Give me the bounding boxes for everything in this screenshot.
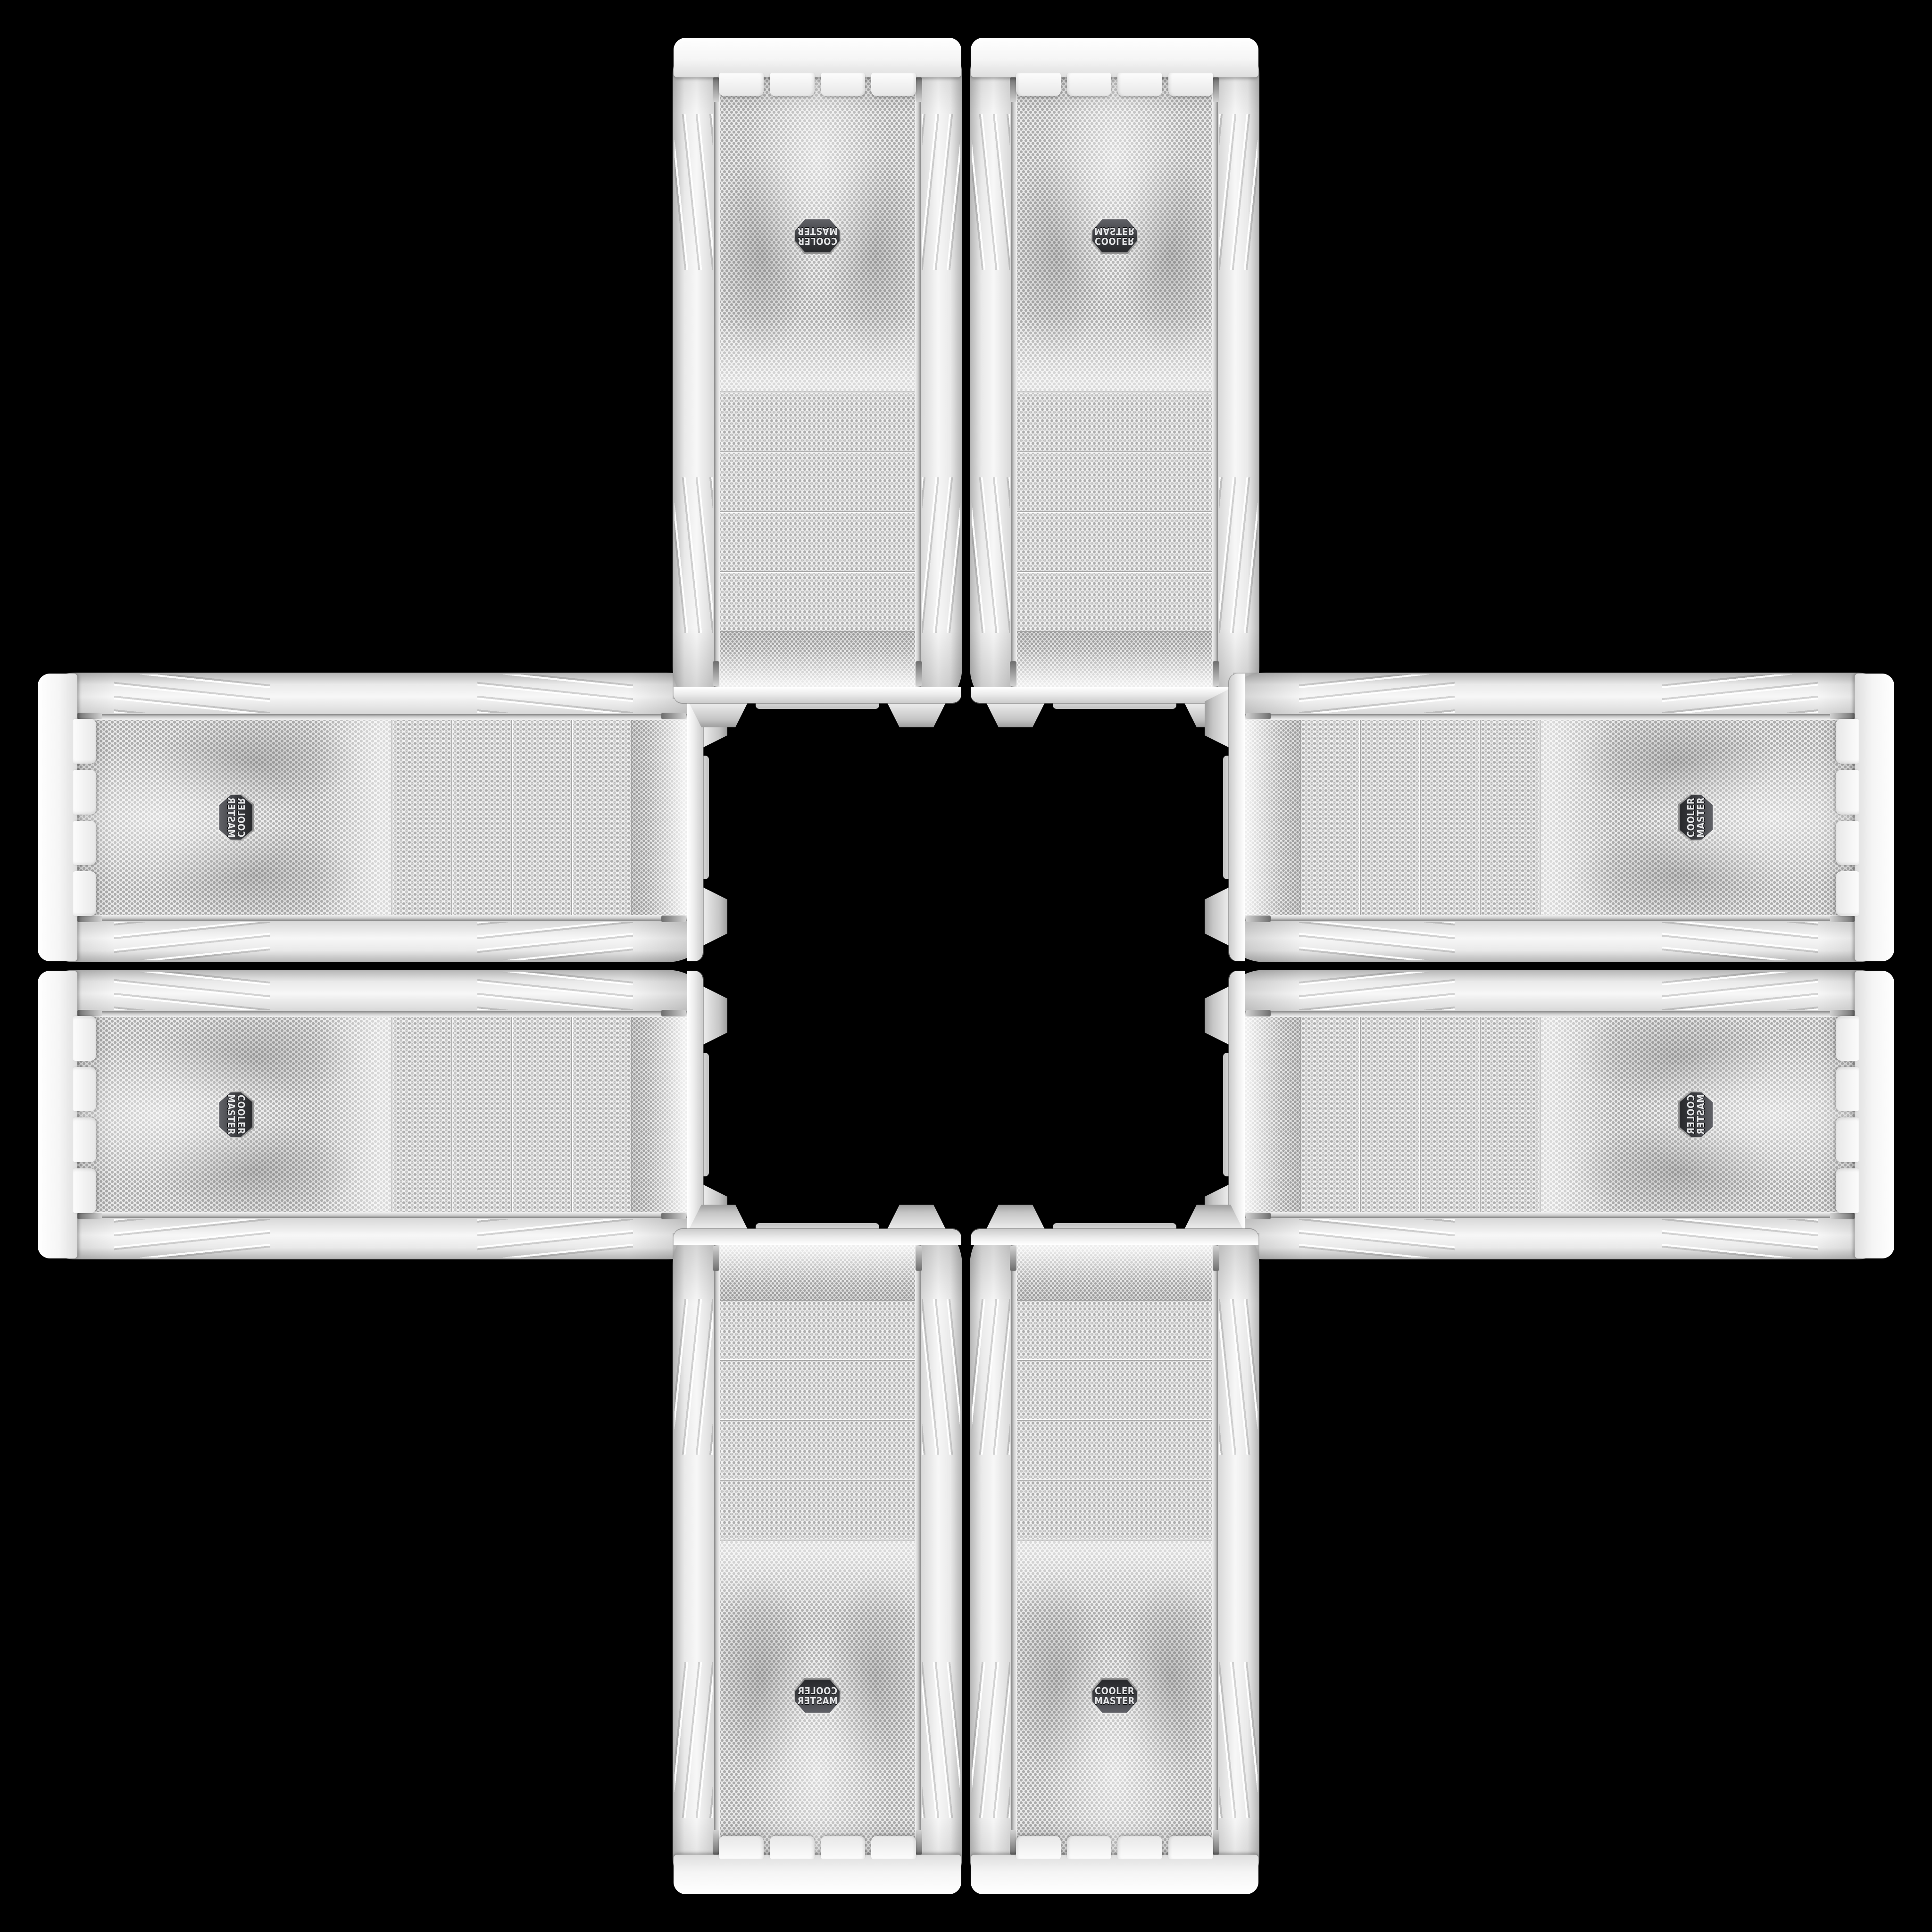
badge-text-line2: MASTER (226, 1094, 236, 1135)
side-groove-band (477, 922, 633, 960)
cap-tab-row (1016, 1836, 1213, 1859)
bottom-trim (1229, 674, 1245, 961)
chrome-hinge-accent (1246, 1213, 1271, 1219)
drive-bay-cover (720, 1301, 915, 1361)
chrome-hinge-accent (1830, 1213, 1855, 1219)
drive-bay-cover (1361, 720, 1421, 915)
bezel-seam-left (1242, 1212, 1857, 1218)
bezel-seam-left (75, 1212, 690, 1218)
badge-face: COOLER MASTER (795, 219, 840, 252)
cap-tab (1118, 1836, 1163, 1859)
cap-tab-row (73, 719, 96, 916)
drive-bay-cover (1421, 1017, 1481, 1212)
chrome-hinge-accent (1010, 661, 1016, 686)
pc-case-top-right: COOLER MASTER (970, 38, 1259, 703)
side-groove-band (1219, 477, 1257, 633)
side-groove-band (1662, 675, 1818, 713)
cap-tab (73, 770, 96, 815)
badge-text-line1: COOLER (1686, 1095, 1696, 1134)
cap-tab (73, 821, 96, 866)
front-mesh-panel (1017, 75, 1212, 687)
side-groove-band (1662, 1219, 1818, 1257)
cap-tab (73, 1016, 96, 1061)
intake-mesh (720, 1245, 915, 1301)
cap-tab (1836, 770, 1859, 815)
cooler-master-badge: COOLER MASTER (218, 794, 254, 841)
badge-text-line2: MASTER (226, 797, 236, 838)
bezel-seam-right (75, 915, 690, 921)
side-groove-band (1299, 675, 1455, 713)
drive-bay-cover (1361, 1017, 1421, 1212)
side-groove-band (675, 1662, 713, 1818)
bottom-lip (756, 702, 879, 709)
chrome-hinge-accent (661, 916, 686, 922)
side-panel-left (1218, 1233, 1259, 1889)
drive-bay-cover (720, 1361, 915, 1421)
front-mesh-panel (1017, 1245, 1212, 1857)
cap-tab (73, 719, 96, 764)
cap-tab (1016, 1836, 1061, 1859)
side-panel-left (1218, 43, 1259, 699)
side-panel-left (673, 1233, 714, 1889)
pc-case-left-top: COOLER MASTER (38, 673, 703, 962)
chrome-hinge-accent (916, 1246, 922, 1271)
drive-bay-cover (571, 720, 631, 915)
pc-case-right-top: COOLER MASTER (1229, 673, 1894, 962)
side-groove-band (922, 1662, 960, 1818)
case-foot (702, 881, 727, 952)
intake-mesh (1017, 631, 1212, 687)
cap-tab (871, 1836, 916, 1859)
drive-bay-cover (1301, 1017, 1361, 1212)
scalloped-end-cap (674, 1855, 961, 1894)
side-groove-band (972, 1662, 1010, 1818)
chrome-hinge-accent (77, 916, 102, 922)
badge-text-line1: COOLER (1686, 798, 1696, 837)
cap-tab (1836, 1067, 1859, 1112)
pc-case-bottom-right: COOLER MASTER (970, 1229, 1259, 1894)
cooler-master-badge: COOLER MASTER (794, 1678, 841, 1714)
badge-text-line1: COOLER (236, 798, 246, 837)
badge-face: COOLER MASTER (795, 1680, 840, 1713)
case-foot (1205, 980, 1230, 1051)
cap-tab (1067, 73, 1112, 96)
drive-bay-cover (720, 391, 915, 451)
chrome-hinge-accent (1213, 1830, 1219, 1855)
chrome-hinge-accent (916, 1830, 922, 1855)
side-panel-right (1233, 921, 1889, 962)
drive-bay-cover (1017, 1481, 1212, 1541)
chrome-hinge-accent (77, 713, 102, 719)
drive-bay-cover (720, 571, 915, 631)
cap-tab (770, 73, 815, 96)
case-foot (980, 1205, 1051, 1230)
badge-text-line2: MASTER (797, 1696, 838, 1706)
cap-tab-row (1836, 719, 1859, 916)
cap-tab (1836, 1168, 1859, 1213)
chrome-hinge-accent (1010, 77, 1016, 102)
bezel-seam-right (75, 1011, 690, 1017)
scalloped-end-cap (674, 38, 961, 77)
scalloped-end-cap (971, 1855, 1258, 1894)
cap-tab-row (73, 1016, 96, 1213)
cap-tab-row (1836, 1016, 1859, 1213)
chrome-hinge-accent (1830, 713, 1855, 719)
chrome-hinge-accent (661, 713, 686, 719)
chrome-hinge-accent (1830, 916, 1855, 922)
pc-case-right-bottom: COOLER MASTER (1229, 970, 1894, 1259)
cap-tab (719, 73, 764, 96)
bezel-seam-right (915, 75, 921, 690)
side-panel-left (1233, 1218, 1889, 1259)
badge-face: COOLER MASTER (1092, 219, 1137, 252)
chrome-hinge-accent (1246, 916, 1271, 922)
side-groove-band (477, 675, 633, 713)
chrome-hinge-accent (1213, 1246, 1219, 1271)
bezel-seam-left (1212, 1242, 1218, 1857)
drive-bay-cover (1017, 451, 1212, 511)
drive-bay-cover (1017, 1301, 1212, 1361)
side-panel-left (43, 673, 699, 714)
side-groove-band (1219, 114, 1257, 270)
drive-bay-cover (1481, 1017, 1541, 1212)
bottom-lip (702, 1053, 709, 1176)
drive-bay-cover (1017, 571, 1212, 631)
badge-face: COOLER MASTER (1680, 795, 1713, 840)
scalloped-end-cap (38, 674, 77, 961)
bezel-seam-left (714, 75, 720, 690)
drive-bay-cover (1301, 720, 1361, 915)
cap-tab-row (1016, 73, 1213, 96)
drive-bay-cover (720, 1481, 915, 1541)
badge-face: COOLER MASTER (1092, 1680, 1137, 1713)
intake-mesh (1245, 720, 1301, 915)
side-panel-right (43, 921, 699, 962)
side-groove-band (477, 972, 633, 1010)
cooler-master-badge: COOLER MASTER (218, 1091, 254, 1138)
front-mesh-panel (1245, 720, 1857, 915)
cap-tab (1118, 73, 1163, 96)
cap-tab (1836, 719, 1859, 764)
cap-tab (73, 1118, 96, 1163)
side-groove-band (114, 675, 270, 713)
chrome-hinge-accent (77, 1010, 102, 1016)
cap-tab (73, 871, 96, 916)
drive-bay-cover (1017, 1421, 1212, 1481)
side-groove-band (922, 114, 960, 270)
chrome-hinge-accent (661, 1010, 686, 1016)
cap-tab (1836, 1016, 1859, 1061)
cap-tab (871, 73, 916, 96)
cap-tab (821, 1836, 866, 1859)
badge-text-line2: MASTER (797, 226, 838, 236)
bottom-trim (971, 1229, 1258, 1245)
intake-mesh (631, 720, 687, 915)
cap-tab-row (719, 1836, 916, 1859)
badge-text-line1: COOLER (1095, 1686, 1134, 1696)
badge-text-line2: MASTER (1094, 1696, 1135, 1706)
bezel-seam-left (1212, 75, 1218, 690)
chrome-hinge-accent (77, 1213, 102, 1219)
chrome-hinge-accent (713, 661, 719, 686)
cap-tab (821, 73, 866, 96)
scalloped-end-cap (38, 971, 77, 1258)
cap-tab (1016, 73, 1061, 96)
bezel-seam-right (1242, 1011, 1857, 1017)
side-panel-right (1233, 970, 1889, 1011)
bezel-seam-right (1242, 915, 1857, 921)
drive-bay-cover (451, 720, 511, 915)
cap-tab (1168, 1836, 1213, 1859)
side-groove-band (675, 114, 713, 270)
side-groove-band (1662, 922, 1818, 960)
drive-bay-cover (1017, 511, 1212, 571)
badge-text: COOLER MASTER (1680, 798, 1713, 838)
black-background: COOLER MASTER (0, 0, 1932, 1932)
chrome-hinge-accent (713, 77, 719, 102)
bezel-seam-right (1011, 75, 1017, 690)
side-groove-band (972, 114, 1010, 270)
drive-bay-cover (720, 511, 915, 571)
front-mesh-panel (720, 75, 915, 687)
cap-tab (1836, 821, 1859, 866)
front-mesh-panel (1245, 1017, 1857, 1212)
chrome-hinge-accent (1830, 1010, 1855, 1016)
drive-bay-cover (1421, 720, 1481, 915)
scalloped-end-cap (971, 38, 1258, 77)
badge-text-line2: MASTER (1094, 226, 1135, 236)
chrome-hinge-accent (1213, 661, 1219, 686)
badge-face: COOLER MASTER (1680, 1092, 1713, 1137)
side-groove-band (1219, 1662, 1257, 1818)
bottom-trim (674, 1229, 961, 1245)
side-panel-right (921, 43, 962, 699)
bottom-lip (702, 756, 709, 879)
bezel-seam-right (915, 1242, 921, 1857)
case-foot (1205, 881, 1230, 952)
side-groove-band (1299, 1219, 1455, 1257)
badge-face: COOLER MASTER (219, 795, 252, 840)
chrome-hinge-accent (1010, 1830, 1016, 1855)
cooler-master-badge: COOLER MASTER (1678, 794, 1714, 841)
bottom-trim (674, 687, 961, 703)
badge-text: COOLER MASTER (1095, 219, 1135, 252)
case-foot (980, 702, 1051, 727)
badge-text-line2: MASTER (1696, 797, 1706, 838)
drive-bay-cover (511, 720, 571, 915)
front-mesh-panel (720, 1245, 915, 1857)
side-groove-band (114, 922, 270, 960)
badge-text: COOLER MASTER (798, 219, 838, 252)
side-panel-left (43, 1218, 699, 1259)
drive-bay-cover (1017, 391, 1212, 451)
cap-tab (719, 1836, 764, 1859)
cap-tab (1168, 73, 1213, 96)
badge-text-line1: COOLER (236, 1095, 246, 1134)
cap-tab (770, 1836, 815, 1859)
cap-tab (1067, 1836, 1112, 1859)
intake-mesh (1017, 1245, 1212, 1301)
chrome-hinge-accent (916, 77, 922, 102)
cooler-master-badge: COOLER MASTER (1678, 1091, 1714, 1138)
side-groove-band (114, 972, 270, 1010)
pc-case-top-left: COOLER MASTER (673, 38, 962, 703)
chrome-hinge-accent (1246, 1010, 1271, 1016)
cap-tab (1836, 871, 1859, 916)
drive-bay-cover (571, 1017, 631, 1212)
scalloped-end-cap (1855, 674, 1894, 961)
bezel-seam-left (75, 714, 690, 720)
badge-text-line1: COOLER (798, 236, 837, 246)
drive-bay-cover (511, 1017, 571, 1212)
intake-mesh (1245, 1017, 1301, 1212)
badge-text: COOLER MASTER (1680, 1095, 1713, 1135)
bezel-seam-left (714, 1242, 720, 1857)
side-groove-band (1219, 1299, 1257, 1455)
badge-text: COOLER MASTER (1095, 1680, 1135, 1713)
scalloped-end-cap (1855, 971, 1894, 1258)
chrome-hinge-accent (1246, 713, 1271, 719)
badge-text: COOLER MASTER (219, 798, 252, 838)
side-groove-band (675, 1299, 713, 1455)
chrome-hinge-accent (916, 661, 922, 686)
bezel-seam-right (1011, 1242, 1017, 1857)
intake-mesh (720, 631, 915, 687)
cap-tab-row (719, 73, 916, 96)
front-mesh-panel (75, 720, 687, 915)
side-groove-band (972, 477, 1010, 633)
badge-face: COOLER MASTER (219, 1092, 252, 1137)
badge-text: COOLER MASTER (798, 1680, 838, 1713)
badge-text-line1: COOLER (1095, 236, 1134, 246)
case-foot (881, 702, 952, 727)
side-panel-left (1233, 673, 1889, 714)
side-panel-right (43, 970, 699, 1011)
drive-bay-cover (451, 1017, 511, 1212)
drive-bay-cover (1481, 720, 1541, 915)
pc-case-bottom-left: COOLER MASTER (673, 1229, 962, 1894)
side-groove-band (114, 1219, 270, 1257)
pc-case-left-bottom: COOLER MASTER (38, 970, 703, 1259)
side-groove-band (1662, 972, 1818, 1010)
side-groove-band (1299, 972, 1455, 1010)
case-foot (881, 1205, 952, 1230)
chrome-hinge-accent (1010, 1246, 1016, 1271)
case-foot (702, 980, 727, 1051)
drive-bay-cover (391, 1017, 451, 1212)
side-groove-band (675, 477, 713, 633)
side-groove-band (1299, 922, 1455, 960)
cap-tab (73, 1067, 96, 1112)
front-mesh-panel (75, 1017, 687, 1212)
chrome-hinge-accent (1213, 77, 1219, 102)
side-panel-left (673, 43, 714, 699)
side-panel-right (970, 43, 1011, 699)
side-groove-band (477, 1219, 633, 1257)
intake-mesh (631, 1017, 687, 1212)
badge-text: COOLER MASTER (219, 1095, 252, 1135)
chrome-hinge-accent (713, 1830, 719, 1855)
bottom-lip (1053, 702, 1176, 709)
drive-bay-cover (720, 1421, 915, 1481)
side-groove-band (922, 477, 960, 633)
bezel-seam-left (1242, 714, 1857, 720)
drive-bay-cover (391, 720, 451, 915)
badge-text-line2: MASTER (1696, 1094, 1706, 1135)
chrome-hinge-accent (661, 1213, 686, 1219)
cooler-master-badge: COOLER MASTER (1091, 218, 1138, 254)
cap-tab (1836, 1118, 1859, 1163)
chrome-hinge-accent (713, 1246, 719, 1271)
side-panel-right (921, 1233, 962, 1889)
side-groove-band (972, 1299, 1010, 1455)
drive-bay-cover (1017, 1361, 1212, 1421)
drive-bay-cover (720, 451, 915, 511)
cooler-master-badge: COOLER MASTER (1091, 1678, 1138, 1714)
badge-text-line1: COOLER (798, 1686, 837, 1696)
side-panel-right (970, 1233, 1011, 1889)
cooler-master-badge: COOLER MASTER (794, 218, 841, 254)
cap-tab (73, 1168, 96, 1213)
side-groove-band (922, 1299, 960, 1455)
